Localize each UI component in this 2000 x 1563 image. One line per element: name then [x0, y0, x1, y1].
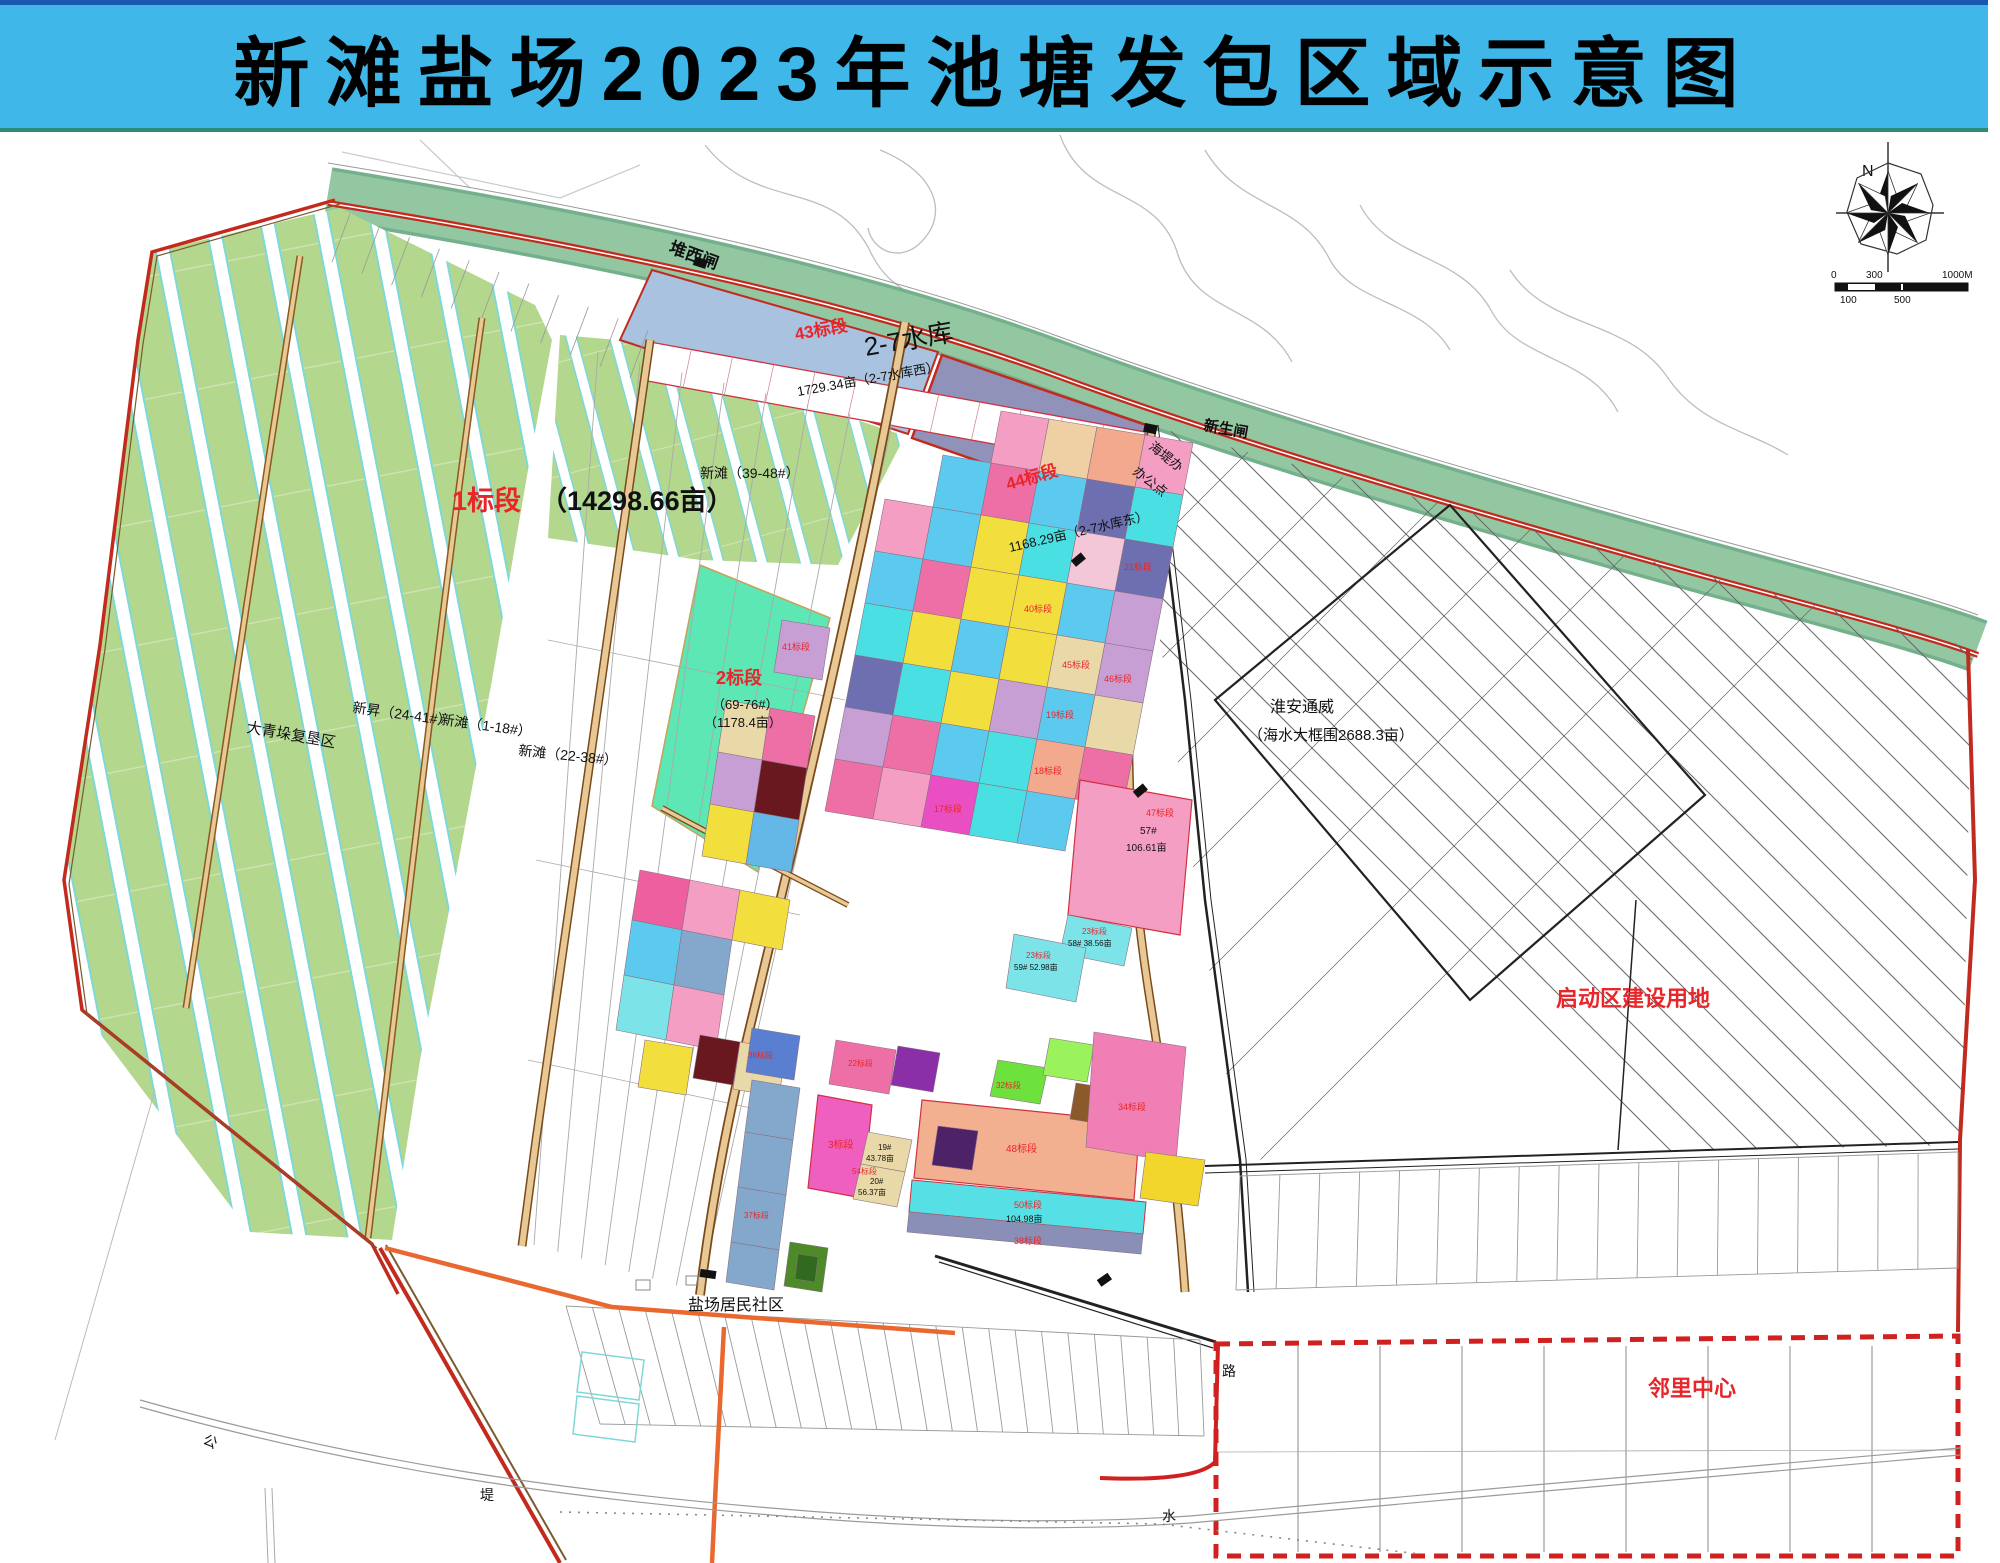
community-buildings [573, 1269, 716, 1442]
map-label: 41标段 [782, 641, 810, 652]
map-label: 47标段 [1146, 807, 1174, 818]
map-label: 21标段 [1124, 561, 1152, 572]
map-label: 106.61亩 [1126, 841, 1167, 854]
map-label: 57# [1140, 826, 1157, 837]
map-label: 20# [870, 1177, 884, 1186]
map-label: 37标段 [744, 1210, 769, 1220]
east-red-boundary [1958, 650, 1975, 1332]
map-label: 36标段 [748, 1050, 773, 1060]
pond-parcel [1095, 643, 1153, 703]
map-label: 45标段 [1062, 659, 1090, 670]
map-label: （69-76#） [712, 697, 778, 712]
pond-parcel [865, 551, 923, 611]
pond-parcel [969, 783, 1027, 843]
pond-parcel [999, 627, 1057, 687]
map-label: 58# 38.56亩 [1068, 938, 1112, 948]
pond-parcel [738, 1132, 793, 1195]
map-label: 1标段 [452, 486, 521, 516]
map-label: 56.37亩 [858, 1187, 886, 1197]
map-label: 堤 [480, 1487, 494, 1503]
map-label: 新滩（39-48#） [700, 465, 800, 481]
map-label: 34标段 [1118, 1101, 1146, 1112]
pond-parcel [745, 1080, 800, 1140]
pond-parcel [913, 559, 971, 619]
pond-parcel [754, 760, 807, 820]
pond-parcel [883, 715, 941, 775]
pond-parcel [875, 499, 933, 559]
pond-parcel [726, 1242, 779, 1290]
scale-0: 0 [1831, 270, 1837, 281]
map-label: 22标段 [848, 1058, 873, 1068]
pond-parcel [989, 679, 1047, 739]
map-label: 路 [1222, 1363, 1236, 1379]
map-page: 新滩盐场2023年池塘发包区域示意图 [0, 0, 2000, 1563]
pond-parcel [616, 975, 674, 1040]
map-label: 19# [878, 1143, 892, 1152]
pond-parcel [1086, 1032, 1186, 1162]
pond-parcel [1043, 1038, 1094, 1082]
pond-parcel [632, 870, 690, 930]
north-label: N [1862, 163, 1874, 180]
salt-field-map: N 0 300 1000M 100 500 堆西闸新生闸海堤办办公点43标段2-… [0, 0, 2000, 1563]
pond-parcel [624, 920, 682, 985]
pond-parcel [1105, 591, 1163, 651]
map-label: 46标段 [1104, 673, 1132, 684]
map-label: 水 [1162, 1508, 1176, 1524]
map-label: 23标段 [1026, 950, 1051, 960]
scale-1000: 1000M [1942, 270, 1973, 281]
pond-parcel [903, 611, 961, 671]
map-label: 43.78亩 [866, 1153, 894, 1163]
pond-parcel [873, 767, 931, 827]
map-label: 104.98亩 [1006, 1213, 1043, 1224]
map-label: 3标段 [828, 1138, 854, 1151]
map-label: 23标段 [1082, 926, 1107, 936]
pond-parcel [1085, 695, 1143, 755]
pond-parcel [682, 880, 740, 940]
pond-parcel [991, 411, 1049, 471]
scale-bar: 0 300 1000M 100 500 [1831, 270, 1973, 306]
huaian-tongwei-area [1215, 505, 1705, 1000]
pond-parcel [893, 663, 951, 723]
pond-parcel [932, 1126, 978, 1170]
map-label: 48标段 [1006, 1142, 1037, 1155]
sea-dike-road [140, 1400, 1960, 1521]
pond-parcel [638, 1040, 693, 1095]
map-label: 邻里中心 [1648, 1376, 1736, 1401]
pond-parcel [795, 1254, 818, 1282]
pond-parcel [933, 455, 991, 515]
orange-road [385, 1248, 955, 1333]
map-label: 32标段 [996, 1080, 1021, 1090]
scale-100: 100 [1840, 295, 1857, 306]
map-label: 19标段 [1046, 709, 1074, 720]
pond-parcel [732, 890, 790, 950]
map-label: 40标段 [1024, 603, 1052, 614]
pond-parcel [1057, 583, 1115, 643]
map-label: （14298.66亩） [540, 485, 734, 516]
map-label: （1178.4亩） [704, 715, 782, 730]
map-label: 18标段 [1034, 765, 1062, 776]
map-label: 54标段 [852, 1166, 877, 1176]
map-label: 启动区建设用地 [1556, 986, 1710, 1011]
pond-parcel [961, 567, 1019, 627]
pond-parcel [674, 930, 732, 995]
pond-parcel [825, 759, 883, 819]
map-label: 59# 52.98亩 [1014, 962, 1058, 972]
pond-parcel [845, 655, 903, 715]
pond-parcel [941, 671, 999, 731]
map-label: 17标段 [934, 803, 962, 814]
red-road-l [1100, 1344, 1218, 1479]
scale-300: 300 [1866, 270, 1883, 281]
pond-parcel [855, 603, 913, 663]
map-label: （海水大框围2688.3亩） [1248, 726, 1414, 744]
pond-parcel [923, 507, 981, 567]
map-label: 公 [201, 1431, 220, 1451]
scale-500: 500 [1894, 295, 1911, 306]
pond-parcel [710, 752, 762, 812]
map-label: 38标段 [1014, 1235, 1042, 1246]
pond-parcel [1068, 780, 1192, 935]
pond-parcel [891, 1046, 940, 1092]
pond-parcel [951, 619, 1009, 679]
map-label: 2标段 [716, 667, 763, 688]
pond-parcel [702, 804, 754, 864]
compass-rose: N [1836, 142, 1944, 272]
map-label: 盐场居民社区 [688, 1296, 784, 1314]
pond-parcel [693, 1035, 740, 1085]
pond-parcel [835, 707, 893, 767]
map-label: 淮安通威 [1270, 698, 1334, 716]
pond-parcel [979, 731, 1037, 791]
pond-parcel [746, 812, 799, 872]
map-label: 50标段 [1014, 1199, 1042, 1210]
pond-parcel [1017, 791, 1075, 851]
pond-parcel [931, 723, 989, 783]
pond-parcel [1140, 1152, 1205, 1206]
